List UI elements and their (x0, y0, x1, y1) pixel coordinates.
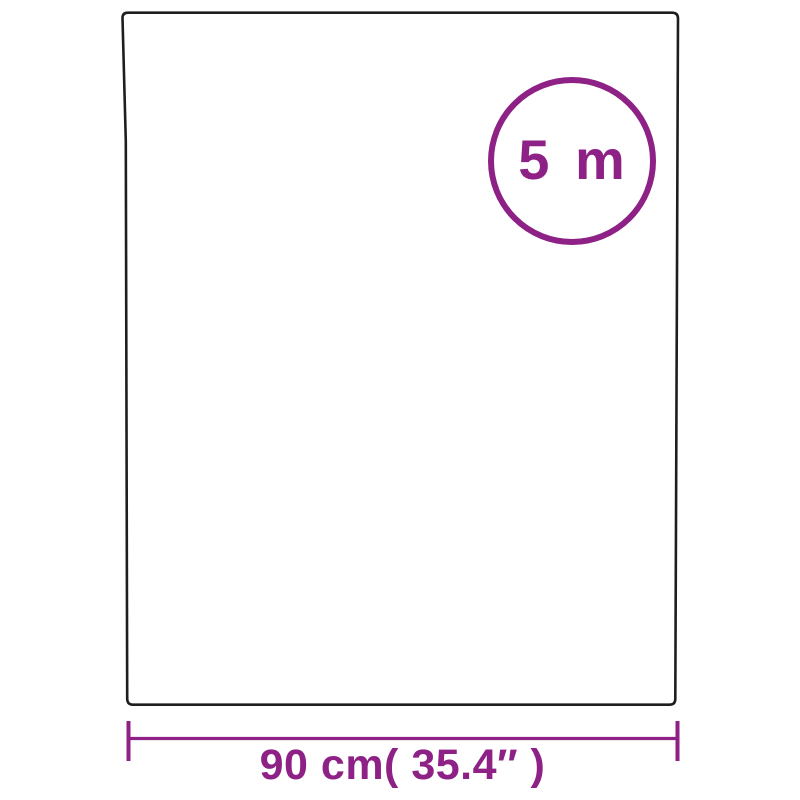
length-badge-circle: 5 m (488, 77, 656, 245)
length-badge-label: 5 m (518, 132, 626, 190)
dimension-drawing (0, 0, 800, 800)
product-dimension-diagram: 5 m 90 cm( 35.4″ ) (0, 0, 800, 800)
width-dimension-label: 90 cm( 35.4″ ) (127, 744, 678, 787)
